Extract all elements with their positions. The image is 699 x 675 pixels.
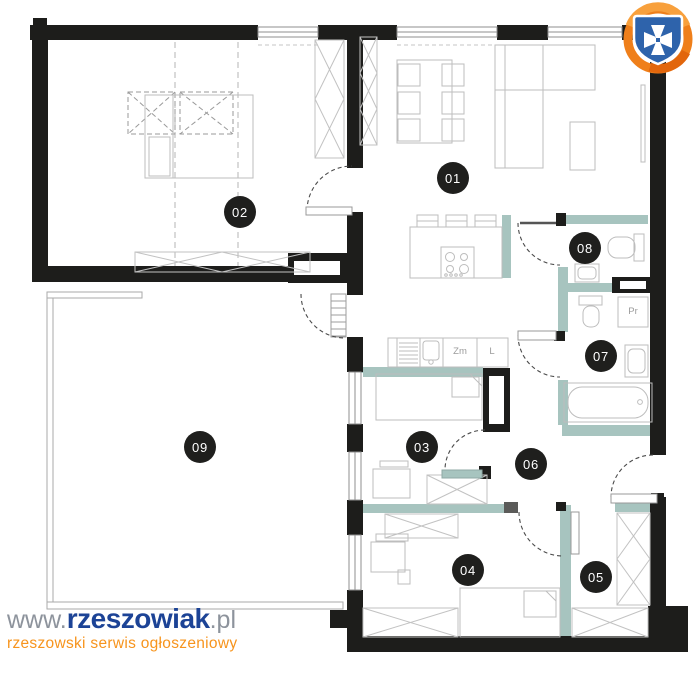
wall-cap-6 bbox=[504, 502, 518, 513]
wall-cap-1 bbox=[556, 213, 566, 226]
chair bbox=[398, 92, 420, 114]
url-suffix: .pl bbox=[210, 606, 236, 634]
washing-machine-label: Pr bbox=[621, 306, 645, 317]
central-wall-s2 bbox=[347, 337, 363, 372]
dishwasher-label: Zm bbox=[448, 346, 472, 357]
wc-bath-wall bbox=[562, 283, 612, 292]
room2-room9-wall bbox=[32, 266, 290, 282]
room-badge-02: 02 bbox=[224, 196, 256, 228]
hall-bath-wall-upper bbox=[558, 267, 568, 332]
room3-room4-wall bbox=[363, 504, 504, 513]
hall-bath-wall-lower bbox=[558, 380, 568, 425]
fridge-label: L bbox=[482, 346, 502, 357]
url-prefix: www. bbox=[7, 606, 67, 634]
terrace-steps bbox=[331, 294, 346, 337]
door-leaf-bathroom bbox=[518, 331, 556, 340]
door-leaf-room3 bbox=[442, 470, 482, 478]
corner-sofa bbox=[495, 45, 595, 168]
bottom-step-block bbox=[330, 610, 363, 628]
room-number: 02 bbox=[232, 205, 248, 220]
central-wall-mid bbox=[347, 212, 363, 257]
door-arc-bathroom bbox=[518, 335, 560, 377]
room-badge-07: 07 bbox=[585, 340, 617, 372]
wardrobe-room5-bottom bbox=[572, 608, 648, 637]
wardrobe-room2 bbox=[315, 40, 344, 158]
door-arc-room4 bbox=[519, 512, 563, 556]
chair bbox=[398, 64, 420, 86]
central-wall-top bbox=[347, 25, 363, 168]
floor-plan-canvas: 01 02 03 04 05 06 07 08 09 Zm L Pr www.r… bbox=[0, 0, 699, 675]
bathtub-tap bbox=[638, 400, 643, 405]
top-wall-a bbox=[30, 25, 258, 40]
chair bbox=[442, 119, 464, 141]
room-badge-01: 01 bbox=[437, 162, 469, 194]
right-wall-lower bbox=[650, 497, 666, 636]
wardrobe-room4-bottom bbox=[363, 608, 458, 637]
room-number: 04 bbox=[460, 563, 476, 578]
wall-cap-5 bbox=[556, 502, 566, 511]
toilet-tank bbox=[579, 296, 602, 305]
desk-room4 bbox=[371, 534, 410, 584]
niche-shaft bbox=[620, 281, 646, 289]
room-number: 01 bbox=[445, 171, 461, 186]
room-number: 09 bbox=[192, 440, 208, 455]
kitchen-island bbox=[410, 215, 502, 278]
watermark: www.rzeszowiak.pl rzeszowski serwis ogło… bbox=[7, 604, 237, 653]
skylight-1 bbox=[128, 92, 175, 134]
room-number: 06 bbox=[523, 457, 539, 472]
door-leaf-room5 bbox=[571, 512, 579, 554]
room5-top-wall bbox=[615, 503, 650, 512]
door-arc-room3 bbox=[445, 430, 485, 470]
desk-room3 bbox=[373, 461, 410, 498]
wardrobe-room5-tall bbox=[617, 513, 650, 605]
skylight-2 bbox=[180, 92, 233, 134]
dining-table bbox=[397, 60, 452, 143]
brand-name: rzeszowiak bbox=[67, 603, 210, 634]
room-badge-06: 06 bbox=[515, 448, 547, 480]
bath-bottom-wall bbox=[562, 425, 650, 436]
room-number: 03 bbox=[414, 440, 430, 455]
chair bbox=[442, 92, 464, 114]
bed-room3 bbox=[376, 374, 482, 420]
central-wall-s4 bbox=[347, 500, 363, 535]
blue-shield bbox=[634, 16, 682, 64]
kitchen-room3-wall bbox=[363, 367, 483, 377]
coffee-table bbox=[570, 122, 595, 170]
top-wall-c bbox=[497, 25, 548, 40]
left-wall bbox=[32, 25, 48, 282]
door-leaf-room2 bbox=[306, 207, 352, 215]
central-wall-s3 bbox=[347, 424, 363, 452]
room-badge-03: 03 bbox=[406, 431, 438, 463]
door-arc-entrance bbox=[611, 455, 653, 497]
room-badge-08: 08 bbox=[569, 232, 601, 264]
dining-set bbox=[397, 60, 464, 143]
rzeszowiak-logo bbox=[620, 2, 696, 76]
watermark-tagline: rzeszowski serwis ogłoszeniowy bbox=[7, 636, 237, 652]
toilet-bowl bbox=[583, 306, 599, 327]
wardrobe-room3 bbox=[427, 475, 487, 504]
chair bbox=[398, 119, 420, 141]
chair bbox=[442, 64, 464, 86]
toilet-bowl bbox=[608, 237, 635, 258]
watermark-url: www.rzeszowiak.pl bbox=[7, 604, 237, 633]
room-number: 07 bbox=[593, 349, 609, 364]
room-badge-09: 09 bbox=[184, 431, 216, 463]
wall-corner-step bbox=[33, 18, 47, 26]
kitchen-island-edge bbox=[502, 215, 511, 278]
room-number: 05 bbox=[588, 570, 604, 585]
room-badge-05: 05 bbox=[580, 561, 612, 593]
bathtub bbox=[564, 383, 652, 422]
roof-slope-lines bbox=[175, 42, 238, 266]
bed-room4 bbox=[460, 588, 560, 637]
niche-kitchen-shaft bbox=[489, 376, 504, 424]
room4-room5-wall bbox=[560, 505, 571, 637]
central-wall-s1 bbox=[347, 283, 363, 295]
door-leaf-entrance bbox=[611, 494, 657, 503]
door-arc-wc bbox=[518, 223, 560, 265]
wc-top-wall bbox=[562, 215, 648, 224]
room-number: 08 bbox=[577, 241, 593, 256]
door-arc-room2 bbox=[307, 166, 352, 211]
room-badge-04: 04 bbox=[452, 554, 484, 586]
niche-room2 bbox=[294, 261, 340, 275]
bottom-wall bbox=[347, 636, 688, 652]
shield-emblem-icon bbox=[620, 2, 696, 76]
radiator bbox=[641, 85, 645, 162]
